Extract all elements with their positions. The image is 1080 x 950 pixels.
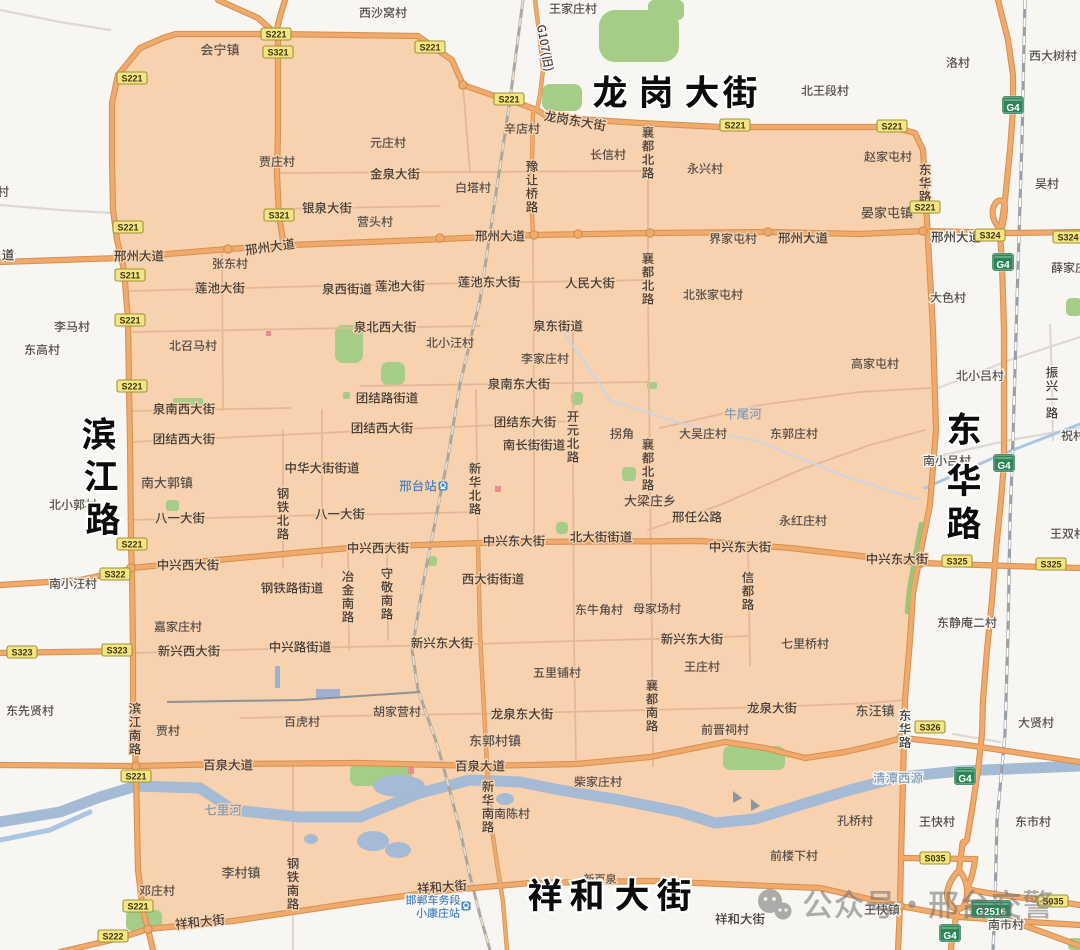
svg-text:新兴东大街: 新兴东大街 [411, 632, 474, 651]
svg-text:李马村: 李马村 [54, 318, 90, 335]
svg-text:百泉大道: 百泉大道 [203, 754, 254, 773]
svg-text:S325: S325 [1040, 559, 1061, 569]
svg-text:团结路街道: 团结路街道 [356, 387, 419, 406]
svg-text:邢州大道: 邢州大道 [114, 245, 165, 264]
svg-text:百虎村: 百虎村 [284, 713, 320, 730]
svg-text:洛村: 洛村 [946, 54, 970, 71]
svg-text:信都路: 信都路 [742, 567, 755, 613]
svg-text:百泉大道: 百泉大道 [455, 755, 506, 774]
svg-text:G4: G4 [943, 931, 957, 942]
svg-text:莲池东大街: 莲池东大街 [458, 271, 521, 290]
svg-text:街: 街 [722, 65, 757, 116]
svg-text:新兴西大街: 新兴西大街 [158, 640, 221, 659]
svg-text:胡家营村: 胡家营村 [373, 703, 421, 720]
svg-text:泉东街道: 泉东街道 [533, 315, 584, 334]
svg-text:东: 东 [946, 402, 981, 453]
svg-text:路: 路 [946, 496, 981, 547]
svg-text:道: 道 [2, 244, 15, 263]
svg-text:长信村: 长信村 [590, 146, 626, 163]
svg-text:王家庄村: 王家庄村 [549, 0, 597, 17]
svg-text:晏家屯镇: 晏家屯镇 [861, 203, 913, 222]
svg-text:泉北西大街: 泉北西大街 [354, 316, 417, 335]
svg-text:团结西大街: 团结西大街 [153, 428, 216, 447]
svg-text:西沙窝村: 西沙窝村 [359, 4, 407, 21]
svg-text:营头村: 营头村 [357, 213, 393, 230]
svg-text:和: 和 [569, 868, 604, 919]
svg-text:钢铁路街道: 钢铁路街道 [261, 577, 324, 596]
svg-text:中华大街街道: 中华大街街道 [284, 457, 360, 476]
svg-text:赵家屯村: 赵家屯村 [864, 148, 912, 165]
svg-text:祥: 祥 [527, 868, 562, 919]
svg-text:S221: S221 [125, 771, 146, 781]
svg-text:滨江南路: 滨江南路 [129, 698, 142, 758]
svg-text:团结西大街: 团结西大街 [351, 417, 414, 436]
svg-text:大吴庄村: 大吴庄村 [679, 425, 727, 442]
svg-text:元庄村: 元庄村 [370, 134, 406, 151]
svg-text:S221: S221 [724, 120, 745, 130]
svg-text:龙泉东大街: 龙泉东大街 [491, 703, 554, 722]
svg-text:东高村: 东高村 [24, 341, 60, 358]
svg-text:南大郭镇: 南大郭镇 [141, 473, 193, 492]
svg-text:邢任公路: 邢任公路 [672, 506, 723, 525]
svg-text:八一大街: 八一大街 [155, 507, 206, 526]
svg-text:G4: G4 [996, 260, 1010, 271]
svg-text:S222: S222 [102, 931, 123, 941]
svg-text:G4: G4 [997, 461, 1011, 472]
svg-text:李家庄村: 李家庄村 [521, 350, 569, 367]
svg-text:拐角: 拐角 [610, 425, 634, 442]
svg-text:豫让桥路: 豫让桥路 [526, 156, 539, 216]
svg-text:七里桥村: 七里桥村 [781, 635, 829, 652]
svg-text:S322: S322 [104, 569, 125, 579]
svg-text:柴家庄村: 柴家庄村 [574, 773, 622, 790]
svg-text:中兴西大街: 中兴西大街 [347, 537, 410, 556]
svg-text:S221: S221 [121, 381, 142, 391]
svg-text:泉南西大街: 泉南西大街 [153, 398, 216, 417]
svg-text:东郭庄村: 东郭庄村 [770, 425, 818, 442]
svg-text:团结东大街: 团结东大街 [494, 411, 557, 430]
svg-text:母家场村: 母家场村 [633, 600, 681, 617]
svg-text:S211: S211 [120, 270, 141, 280]
svg-text:辛店村: 辛店村 [504, 120, 540, 137]
svg-text:东市村: 东市村 [1015, 813, 1051, 830]
svg-text:东先贤村: 东先贤村 [6, 702, 54, 719]
svg-text:五里铺村: 五里铺村 [533, 664, 581, 681]
svg-text:牛尾河: 牛尾河 [724, 403, 762, 422]
svg-text:东郭村镇: 东郭村镇 [469, 731, 521, 750]
svg-text:北大街街道: 北大街街道 [570, 526, 633, 545]
svg-text:邢州大道: 邢州大道 [931, 226, 982, 245]
svg-text:S325: S325 [946, 556, 967, 566]
svg-text:S221: S221 [119, 315, 140, 325]
svg-text:开元北路: 开元北路 [567, 406, 580, 466]
svg-text:前楼下村: 前楼下村 [770, 847, 818, 864]
svg-text:S035: S035 [924, 853, 945, 863]
svg-text:莲池大街: 莲池大街 [375, 275, 426, 294]
svg-text:S221: S221 [127, 901, 148, 911]
svg-text:南长街街道: 南长街街道 [503, 434, 566, 453]
svg-text:中兴西大街: 中兴西大街 [157, 554, 220, 573]
svg-text:南陈村: 南陈村 [494, 805, 530, 822]
svg-text:钢铁北路: 钢铁北路 [277, 483, 290, 543]
svg-text:S324: S324 [979, 230, 1000, 240]
svg-text:襄都南路: 襄都南路 [646, 675, 659, 735]
svg-text:新华北路: 新华北路 [469, 458, 482, 518]
svg-text:大贤村: 大贤村 [1018, 714, 1054, 731]
svg-text:人民大街: 人民大街 [565, 272, 616, 291]
svg-text:冶金南路: 冶金南路 [342, 566, 355, 626]
svg-text:东静庵二村: 东静庵二村 [937, 614, 997, 631]
svg-text:吴村: 吴村 [1035, 175, 1059, 192]
svg-text:高家屯村: 高家屯村 [851, 355, 899, 372]
svg-text:邢台站: 邢台站 [399, 475, 437, 494]
svg-text:S321: S321 [268, 210, 289, 220]
svg-text:村: 村 [0, 183, 9, 200]
svg-text:邢州大道: 邢州大道 [475, 225, 526, 244]
svg-text:龙: 龙 [592, 65, 627, 116]
svg-text:邓庄村: 邓庄村 [139, 882, 175, 899]
svg-text:祝村: 祝村 [1061, 427, 1080, 444]
svg-text:八一大街: 八一大街 [315, 503, 366, 522]
svg-text:南小汪村: 南小汪村 [49, 575, 97, 592]
svg-text:G4: G4 [1006, 103, 1020, 114]
svg-text:S326: S326 [919, 722, 940, 732]
svg-text:贾村: 贾村 [156, 722, 180, 739]
svg-text:金泉大街: 金泉大街 [370, 163, 421, 182]
svg-text:东华路: 东华路 [899, 705, 912, 751]
svg-text:前晋祠村: 前晋祠村 [701, 721, 749, 738]
svg-text:王双村: 王双村 [1050, 525, 1080, 542]
svg-text:泉西街道: 泉西街道 [322, 278, 373, 297]
svg-text:S221: S221 [121, 73, 142, 83]
svg-text:龙泉大街: 龙泉大街 [747, 697, 798, 716]
svg-text:S324: S324 [1057, 232, 1078, 242]
svg-text:祥和大街: 祥和大街 [715, 908, 766, 927]
svg-text:襄都北路: 襄都北路 [642, 122, 655, 182]
svg-text:北召马村: 北召马村 [169, 337, 217, 354]
svg-text:西大街街道: 西大街街道 [462, 568, 525, 587]
svg-text:北小吕村: 北小吕村 [956, 367, 1004, 384]
svg-text:永兴村: 永兴村 [687, 160, 723, 177]
svg-text:守敬南路: 守敬南路 [381, 563, 394, 623]
svg-text:银泉大街: 银泉大街 [302, 197, 353, 216]
svg-text:中兴东大街: 中兴东大街 [866, 548, 929, 567]
svg-text:岗: 岗 [638, 65, 673, 116]
svg-text:S221: S221 [117, 222, 138, 232]
svg-text:贾庄村: 贾庄村 [259, 153, 295, 170]
svg-text:S323: S323 [106, 645, 127, 655]
svg-text:北小汪村: 北小汪村 [426, 334, 474, 351]
svg-text:界家屯村: 界家屯村 [709, 230, 757, 247]
svg-text:东牛角村: 东牛角村 [575, 601, 623, 618]
svg-text:永红庄村: 永红庄村 [779, 512, 827, 529]
svg-text:东汪镇: 东汪镇 [855, 701, 894, 720]
svg-text:大: 大 [684, 65, 719, 116]
svg-text:会宁镇: 会宁镇 [200, 40, 239, 59]
svg-text:莲池大街: 莲池大街 [195, 277, 246, 296]
svg-text:S221: S221 [121, 539, 142, 549]
svg-text:嘉家庄村: 嘉家庄村 [154, 618, 202, 635]
svg-text:公众号·邢台交警: 公众号·邢台交警 [802, 880, 1054, 925]
svg-text:李村镇: 李村镇 [221, 863, 260, 882]
svg-text:七里河: 七里河 [204, 799, 242, 818]
svg-text:东华路: 东华路 [919, 159, 932, 205]
svg-text:张东村: 张东村 [212, 255, 248, 272]
svg-text:新华南路: 新华南路 [482, 776, 495, 836]
svg-text:邢州大道: 邢州大道 [778, 227, 829, 246]
svg-text:小康庄站: 小康庄站 [416, 905, 460, 921]
svg-text:襄都北路: 襄都北路 [642, 434, 655, 494]
svg-text:中兴路街道: 中兴路街道 [269, 636, 332, 655]
svg-text:襄都北路: 襄都北路 [642, 248, 655, 308]
svg-text:大色村: 大色村 [930, 289, 966, 306]
svg-text:街: 街 [656, 868, 691, 919]
svg-text:S321: S321 [267, 47, 288, 57]
svg-text:北张家屯村: 北张家屯村 [683, 286, 743, 303]
svg-text:路: 路 [85, 492, 120, 543]
svg-text:泉南东大街: 泉南东大街 [488, 373, 551, 392]
svg-text:新兴东大街: 新兴东大街 [661, 628, 724, 647]
svg-text:钢铁南路: 钢铁南路 [287, 853, 300, 913]
svg-text:S221: S221 [914, 202, 935, 212]
svg-text:中兴东大街: 中兴东大街 [709, 536, 772, 555]
svg-text:大: 大 [614, 868, 649, 919]
svg-text:S221: S221 [265, 29, 286, 39]
svg-text:S221: S221 [419, 42, 440, 52]
svg-text:S323: S323 [11, 647, 32, 657]
svg-text:王快村: 王快村 [919, 813, 955, 830]
svg-text:西大树村: 西大树村 [1029, 47, 1077, 64]
svg-text:振兴一路: 振兴一路 [1046, 362, 1059, 422]
svg-text:薛家庄: 薛家庄 [1051, 259, 1080, 276]
svg-text:北王段村: 北王段村 [801, 82, 849, 99]
svg-text:中兴东大街: 中兴东大街 [483, 530, 546, 549]
svg-text:清潭西源: 清潭西源 [873, 767, 924, 786]
svg-text:S221: S221 [498, 94, 519, 104]
svg-text:S221: S221 [881, 121, 902, 131]
svg-text:G4: G4 [958, 774, 972, 785]
svg-text:王庄村: 王庄村 [684, 658, 720, 675]
svg-text:孔桥村: 孔桥村 [837, 812, 873, 829]
svg-text:白塔村: 白塔村 [455, 179, 491, 196]
